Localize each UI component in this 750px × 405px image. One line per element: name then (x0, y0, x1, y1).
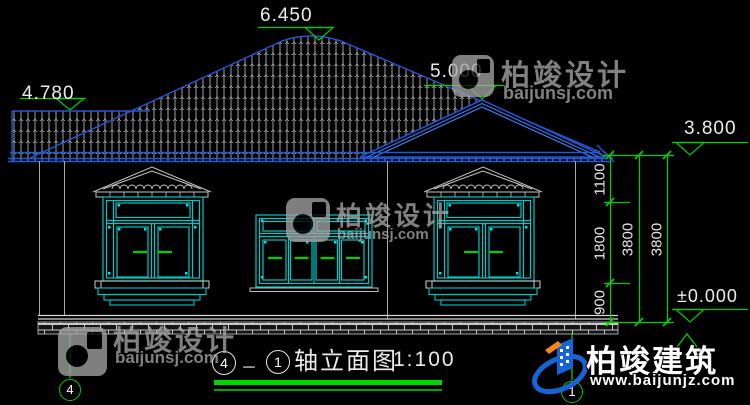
title-underline-thin (214, 389, 442, 391)
dim-label-3800-b: 3800 (649, 218, 666, 262)
dim-label-1800: 1800 (592, 222, 609, 266)
elevation-label-eave: 3.800 (684, 118, 737, 140)
drawing-title: 轴立面图 (294, 341, 398, 376)
right-bay-window (424, 167, 542, 305)
watermark-url: baijunsj.com (337, 226, 429, 243)
axis-bubble-4: 4 (59, 379, 81, 401)
watermark-url: baijunsj.com (503, 83, 613, 104)
dim-label-900: 900 (592, 281, 609, 325)
drawing-scale: 1:100 (393, 348, 456, 372)
elevation-label-ridge: 6.450 (260, 5, 313, 27)
baijun-logo-icon (452, 55, 494, 97)
title-dash: － (241, 354, 257, 378)
cad-elevation-drawing: 6.450 4.780 5.000 3.800 ±0.000 1100 1800… (0, 0, 750, 405)
title-axis-end: 1 (266, 350, 290, 374)
watermark-url: www.baijunjz.com (590, 372, 735, 389)
elevation-label-ground: ±0.000 (677, 286, 738, 307)
elevation-label-wing: 4.780 (22, 83, 75, 105)
dim-label-1100: 1100 (592, 158, 609, 202)
baijunjz-logo-icon (527, 332, 593, 404)
baijun-logo-icon (58, 327, 107, 376)
left-bay-window (93, 167, 211, 305)
watermark-url: baijunsj.com (115, 348, 219, 368)
baijun-logo-icon (286, 198, 330, 242)
dim-label-3800-a: 3800 (620, 218, 637, 262)
title-underline-thick (214, 380, 442, 385)
